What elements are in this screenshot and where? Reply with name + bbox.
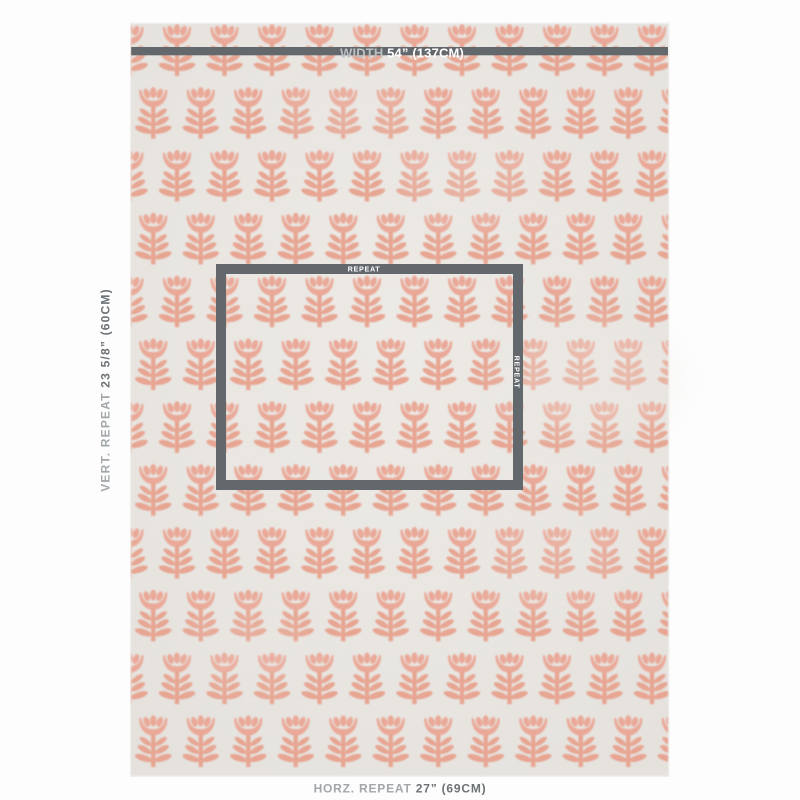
svg-text:VERT. REPEAT 23 5/8” (60CM): VERT. REPEAT 23 5/8” (60CM) <box>99 288 113 492</box>
svg-text:REPEAT: REPEAT <box>513 356 522 389</box>
svg-text:REPEAT: REPEAT <box>348 265 381 274</box>
svg-text:HORZ. REPEAT 27” (69CM): HORZ. REPEAT 27” (69CM) <box>314 782 487 796</box>
svg-text:WIDTH 54” (137CM): WIDTH 54” (137CM) <box>340 46 464 61</box>
